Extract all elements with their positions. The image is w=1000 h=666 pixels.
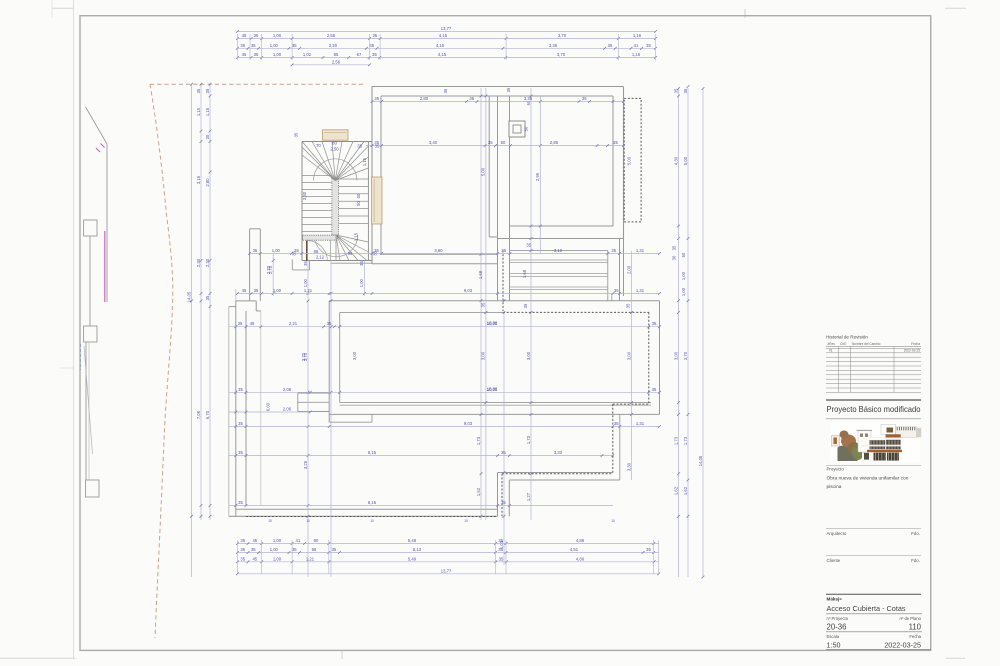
svg-text:35: 35 bbox=[481, 302, 486, 307]
svg-text:1,00: 1,00 bbox=[272, 248, 281, 253]
svg-text:3,70: 3,70 bbox=[558, 33, 567, 38]
svg-text:1,16: 1,16 bbox=[633, 33, 642, 38]
svg-text:35: 35 bbox=[254, 52, 259, 57]
svg-text:5,13: 5,13 bbox=[413, 547, 422, 552]
svg-text:10,00: 10,00 bbox=[487, 321, 498, 326]
svg-text:3,25: 3,25 bbox=[303, 460, 308, 469]
svg-text:35: 35 bbox=[582, 96, 587, 101]
svg-text:Fecha: Fecha bbox=[909, 634, 921, 639]
svg-text:35: 35 bbox=[372, 52, 377, 57]
svg-text:88: 88 bbox=[314, 249, 319, 254]
svg-text:35: 35 bbox=[359, 261, 364, 266]
svg-text:35: 35 bbox=[196, 88, 201, 93]
svg-text:3,35: 3,35 bbox=[549, 43, 558, 48]
svg-text:3,30: 3,30 bbox=[626, 462, 631, 471]
svg-text:Proyecto: Proyecto bbox=[827, 467, 845, 472]
svg-text:35: 35 bbox=[501, 248, 506, 253]
svg-text:3,00: 3,00 bbox=[352, 351, 357, 360]
svg-text:1,00: 1,00 bbox=[273, 538, 282, 543]
svg-text:Escala: Escala bbox=[827, 634, 840, 639]
svg-text:2,85: 2,85 bbox=[550, 140, 559, 145]
svg-text:35: 35 bbox=[238, 500, 243, 505]
svg-text:8,15: 8,15 bbox=[368, 500, 377, 505]
svg-text:1,21: 1,21 bbox=[304, 288, 313, 293]
svg-text:35: 35 bbox=[238, 421, 243, 426]
svg-text:#Rev: #Rev bbox=[828, 342, 836, 346]
svg-text:1,62: 1,62 bbox=[673, 486, 678, 495]
svg-text:3,00: 3,00 bbox=[626, 351, 631, 360]
svg-text:3,10: 3,10 bbox=[554, 248, 563, 253]
svg-text:1,15: 1,15 bbox=[205, 107, 210, 116]
svg-text:35: 35 bbox=[240, 556, 245, 561]
svg-text:2,70: 2,70 bbox=[266, 265, 271, 274]
svg-text:5,49: 5,49 bbox=[408, 556, 417, 561]
svg-text:35: 35 bbox=[498, 538, 503, 543]
svg-text:2,21: 2,21 bbox=[289, 321, 298, 326]
svg-text:9,03: 9,03 bbox=[464, 421, 473, 426]
svg-text:35: 35 bbox=[614, 288, 619, 293]
svg-text:1,15: 1,15 bbox=[354, 232, 359, 241]
svg-text:35: 35 bbox=[240, 43, 245, 48]
svg-text:3,00: 3,00 bbox=[526, 351, 531, 360]
svg-text:35: 35 bbox=[608, 43, 613, 48]
svg-text:35: 35 bbox=[652, 321, 657, 326]
svg-text:01: 01 bbox=[829, 349, 833, 353]
svg-text:2,06: 2,06 bbox=[283, 387, 292, 392]
svg-text:30: 30 bbox=[671, 255, 676, 260]
svg-text:35: 35 bbox=[251, 43, 256, 48]
svg-text:35: 35 bbox=[374, 96, 379, 101]
svg-text:3,70: 3,70 bbox=[301, 352, 306, 361]
svg-text:4,30: 4,30 bbox=[673, 156, 678, 165]
svg-text:35: 35 bbox=[611, 248, 616, 253]
svg-text:10: 10 bbox=[370, 519, 374, 523]
svg-text:1,31: 1,31 bbox=[636, 421, 645, 426]
svg-text:1,68: 1,68 bbox=[522, 269, 527, 278]
svg-text:35: 35 bbox=[253, 248, 258, 253]
svg-text:1,00: 1,00 bbox=[681, 287, 686, 296]
svg-text:35: 35 bbox=[375, 144, 380, 149]
svg-text:1,68: 1,68 bbox=[478, 270, 483, 279]
svg-text:2,30: 2,30 bbox=[205, 258, 210, 267]
svg-text:50: 50 bbox=[356, 193, 361, 198]
svg-text:35: 35 bbox=[673, 88, 678, 93]
svg-text:2,56: 2,56 bbox=[332, 60, 341, 65]
svg-text:nº Proyecto: nº Proyecto bbox=[827, 616, 849, 621]
svg-text:2,80: 2,80 bbox=[205, 178, 210, 187]
svg-text:35: 35 bbox=[238, 450, 243, 455]
svg-text:1,52: 1,52 bbox=[476, 487, 481, 496]
svg-text:45: 45 bbox=[250, 321, 255, 326]
svg-text:1,02: 1,02 bbox=[303, 52, 312, 57]
svg-text:3,33: 3,33 bbox=[554, 450, 563, 455]
svg-text:35: 35 bbox=[501, 500, 506, 505]
svg-text:2,95: 2,95 bbox=[535, 172, 540, 181]
svg-text:Fdo.: Fdo. bbox=[911, 558, 920, 563]
svg-text:5,00: 5,00 bbox=[481, 167, 486, 176]
svg-text:35: 35 bbox=[332, 547, 337, 552]
svg-text:67: 67 bbox=[357, 52, 362, 57]
svg-text:35: 35 bbox=[652, 387, 657, 392]
svg-text:35: 35 bbox=[205, 134, 210, 139]
svg-text:35: 35 bbox=[369, 43, 374, 48]
svg-text:7,06: 7,06 bbox=[196, 410, 201, 419]
svg-text:Obra nueva de vivienda unifami: Obra nueva de vivienda unifamilar con bbox=[827, 476, 909, 482]
svg-text:35: 35 bbox=[238, 321, 243, 326]
svg-text:35: 35 bbox=[254, 33, 259, 38]
svg-text:1:50: 1:50 bbox=[827, 641, 841, 650]
svg-text:35: 35 bbox=[254, 288, 259, 293]
svg-text:1,27: 1,27 bbox=[526, 492, 531, 501]
svg-text:45: 45 bbox=[252, 556, 257, 561]
svg-text:1,21: 1,21 bbox=[306, 556, 315, 561]
svg-text:5,00: 5,00 bbox=[683, 156, 688, 165]
svg-text:35: 35 bbox=[205, 295, 210, 300]
svg-text:Fecha: Fecha bbox=[911, 342, 920, 346]
svg-text:Proyecto Básico modificado: Proyecto Básico modificado bbox=[827, 404, 921, 414]
svg-text:35: 35 bbox=[646, 43, 651, 48]
svg-text:70: 70 bbox=[316, 143, 321, 148]
svg-text:85: 85 bbox=[334, 52, 339, 57]
svg-text:96: 96 bbox=[312, 547, 317, 552]
svg-text:4,51: 4,51 bbox=[570, 547, 579, 552]
svg-text:1,31: 1,31 bbox=[636, 248, 645, 253]
svg-text:1,31: 1,31 bbox=[636, 288, 645, 293]
svg-text:Historial de Revisión: Historial de Revisión bbox=[826, 335, 868, 340]
svg-text:1,00: 1,00 bbox=[359, 278, 364, 287]
svg-text:5,00: 5,00 bbox=[626, 156, 631, 165]
svg-text:35: 35 bbox=[469, 96, 474, 101]
svg-text:35: 35 bbox=[613, 140, 618, 145]
svg-text:50: 50 bbox=[356, 201, 361, 206]
svg-text:9,03: 9,03 bbox=[464, 288, 473, 293]
svg-text:35: 35 bbox=[683, 88, 688, 93]
svg-text:10,00: 10,00 bbox=[487, 387, 498, 392]
svg-text:35: 35 bbox=[251, 547, 256, 552]
svg-text:35: 35 bbox=[327, 321, 332, 326]
svg-text:10: 10 bbox=[306, 519, 310, 523]
svg-text:3,70: 3,70 bbox=[557, 52, 566, 57]
svg-text:41: 41 bbox=[634, 43, 639, 48]
svg-text:35: 35 bbox=[646, 547, 651, 552]
svg-text:Máksj»: Máksj» bbox=[827, 597, 843, 602]
svg-text:35: 35 bbox=[240, 547, 245, 552]
svg-text:3,35: 3,35 bbox=[524, 96, 533, 101]
svg-text:1,00: 1,00 bbox=[270, 43, 279, 48]
svg-text:3,00: 3,00 bbox=[673, 351, 678, 360]
svg-text:2022-03-25: 2022-03-25 bbox=[904, 349, 921, 353]
svg-text:35: 35 bbox=[292, 547, 297, 552]
svg-text:45: 45 bbox=[242, 33, 247, 38]
svg-text:piscina: piscina bbox=[827, 484, 842, 490]
svg-text:2,12: 2,12 bbox=[316, 255, 325, 260]
svg-text:1,00: 1,00 bbox=[273, 556, 282, 561]
svg-text:10: 10 bbox=[464, 519, 468, 523]
svg-text:35: 35 bbox=[526, 243, 531, 248]
svg-text:80: 80 bbox=[314, 538, 319, 543]
svg-text:5,48: 5,48 bbox=[408, 538, 417, 543]
svg-text:35: 35 bbox=[614, 421, 619, 426]
svg-text:3,60: 3,60 bbox=[434, 248, 443, 253]
svg-text:1,73: 1,73 bbox=[476, 436, 481, 445]
svg-text:4,15: 4,15 bbox=[439, 33, 448, 38]
svg-text:35: 35 bbox=[294, 132, 299, 137]
svg-text:6,60: 6,60 bbox=[266, 402, 271, 411]
svg-text:1,73: 1,73 bbox=[526, 435, 531, 444]
svg-text:41: 41 bbox=[296, 538, 301, 543]
svg-text:2,30: 2,30 bbox=[196, 258, 201, 267]
svg-text:10: 10 bbox=[611, 519, 615, 523]
svg-text:2022-03-25: 2022-03-25 bbox=[884, 641, 921, 650]
svg-text:2,50: 2,50 bbox=[330, 146, 339, 151]
svg-text:1,73: 1,73 bbox=[683, 436, 688, 445]
svg-text:Acceso Cubierta - Cotas: Acceso Cubierta - Cotas bbox=[827, 604, 906, 613]
svg-text:3,15: 3,15 bbox=[196, 175, 201, 184]
svg-text:4,86: 4,86 bbox=[576, 538, 585, 543]
svg-text:35: 35 bbox=[205, 88, 210, 93]
svg-text:1,73: 1,73 bbox=[673, 436, 678, 445]
svg-text:2,20: 2,20 bbox=[329, 43, 338, 48]
svg-text:13,77: 13,77 bbox=[441, 26, 452, 31]
svg-text:Nombre del Cambio: Nombre del Cambio bbox=[852, 342, 881, 346]
svg-text:13,77: 13,77 bbox=[441, 568, 452, 573]
svg-text:3,70: 3,70 bbox=[683, 351, 688, 360]
svg-text:2,55: 2,55 bbox=[327, 33, 336, 38]
svg-text:1,00: 1,00 bbox=[273, 33, 282, 38]
svg-text:2,00: 2,00 bbox=[626, 265, 631, 274]
svg-text:1,15: 1,15 bbox=[196, 107, 201, 116]
svg-text:80: 80 bbox=[332, 141, 337, 146]
svg-text:4,15: 4,15 bbox=[438, 52, 447, 57]
svg-text:110: 110 bbox=[909, 623, 922, 632]
svg-text:1,00: 1,00 bbox=[681, 271, 686, 280]
svg-text:1,00: 1,00 bbox=[303, 278, 308, 287]
svg-text:35: 35 bbox=[488, 140, 493, 145]
svg-text:20-36: 20-36 bbox=[827, 623, 847, 632]
svg-text:35: 35 bbox=[443, 88, 448, 93]
svg-text:35: 35 bbox=[523, 303, 528, 308]
svg-text:50: 50 bbox=[523, 126, 528, 131]
svg-text:1,16: 1,16 bbox=[632, 52, 641, 57]
svg-text:60: 60 bbox=[681, 252, 686, 257]
svg-text:14,05: 14,05 bbox=[186, 291, 191, 302]
svg-text:Cliente: Cliente bbox=[827, 558, 841, 563]
svg-text:2,80: 2,80 bbox=[420, 96, 429, 101]
svg-text:50: 50 bbox=[501, 140, 506, 145]
svg-text:35: 35 bbox=[240, 538, 245, 543]
svg-text:Arquitecto: Arquitecto bbox=[827, 531, 847, 536]
svg-text:35: 35 bbox=[303, 261, 308, 266]
svg-text:4,86: 4,86 bbox=[576, 556, 585, 561]
svg-text:35: 35 bbox=[372, 33, 377, 38]
svg-text:3,40: 3,40 bbox=[429, 140, 438, 145]
svg-text:3,30: 3,30 bbox=[302, 191, 307, 200]
svg-text:10: 10 bbox=[268, 519, 272, 523]
svg-text:2,06: 2,06 bbox=[283, 407, 292, 412]
svg-text:96: 96 bbox=[348, 251, 353, 256]
svg-text:35: 35 bbox=[357, 144, 362, 149]
svg-text:ChE: ChE bbox=[840, 342, 846, 346]
svg-text:6,70: 6,70 bbox=[205, 410, 210, 419]
svg-text:45: 45 bbox=[242, 52, 247, 57]
svg-text:35: 35 bbox=[292, 43, 297, 48]
svg-text:3,00: 3,00 bbox=[481, 351, 486, 360]
svg-text:Fdo.: Fdo. bbox=[911, 531, 920, 536]
svg-text:1,15: 1,15 bbox=[362, 157, 367, 166]
svg-text:8,15: 8,15 bbox=[368, 450, 377, 455]
svg-text:35: 35 bbox=[498, 547, 503, 552]
svg-text:1,00: 1,00 bbox=[270, 547, 279, 552]
svg-text:45: 45 bbox=[252, 538, 257, 543]
svg-text:35: 35 bbox=[506, 87, 511, 92]
svg-text:1,62: 1,62 bbox=[683, 486, 688, 495]
svg-text:1,00: 1,00 bbox=[273, 52, 282, 57]
svg-text:35: 35 bbox=[238, 387, 243, 392]
svg-text:1,00: 1,00 bbox=[273, 288, 282, 293]
svg-text:14,05: 14,05 bbox=[698, 455, 703, 466]
svg-text:35: 35 bbox=[499, 556, 504, 561]
svg-text:45: 45 bbox=[242, 288, 247, 293]
svg-text:35: 35 bbox=[626, 303, 631, 308]
svg-text:nº de Plano: nº de Plano bbox=[899, 616, 921, 621]
svg-text:4,15: 4,15 bbox=[436, 43, 445, 48]
svg-text:35: 35 bbox=[671, 245, 676, 250]
svg-text:35: 35 bbox=[292, 250, 297, 255]
svg-text:35: 35 bbox=[373, 250, 378, 255]
svg-text:35: 35 bbox=[501, 450, 506, 455]
